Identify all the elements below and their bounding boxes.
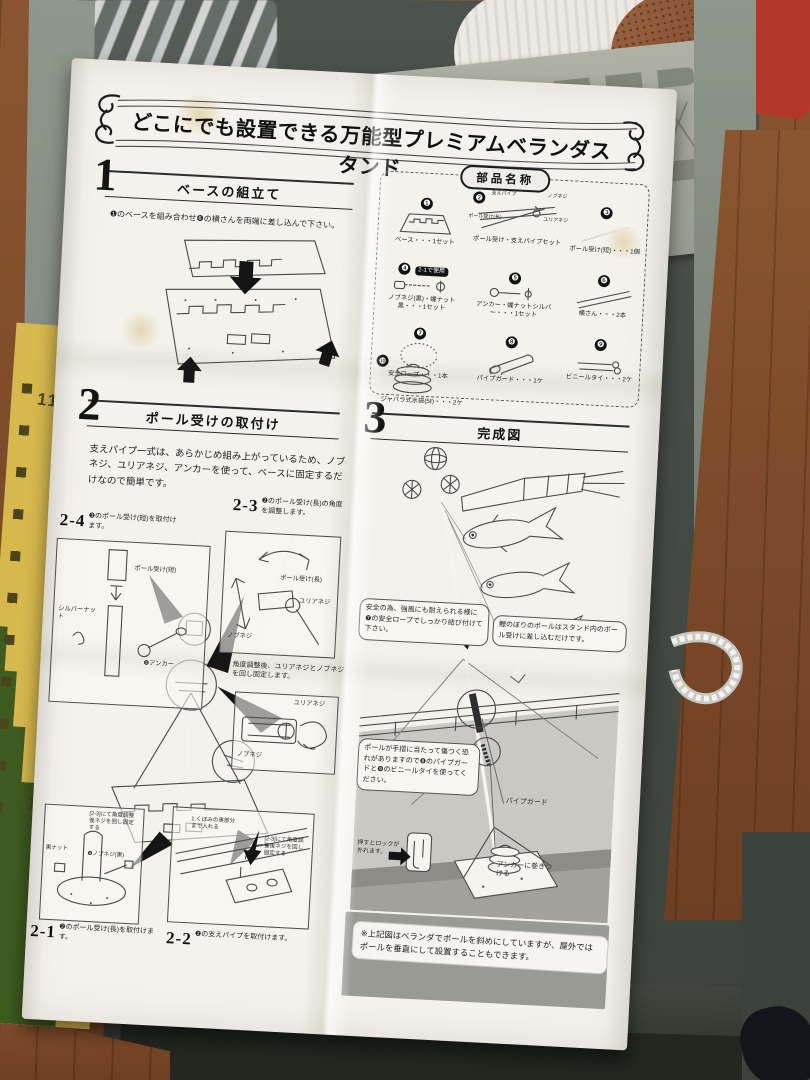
vinyl-tie-icon xyxy=(571,351,628,376)
step2-intro: 支えパイプ一式は、あらかじめ組み上がっているため、ノブネジ、ユリアネジ、アンカー… xyxy=(88,441,348,501)
step2-number: 2 xyxy=(77,384,102,424)
scroll-ornament-icon xyxy=(615,117,652,177)
part-item-1: ❶ ベース・・・1セット xyxy=(383,191,470,248)
step2-1-label: 2-1 ❷のポール受け(長)を取付けます。 xyxy=(30,921,171,948)
part-item-3: ❸ ポール受け(短)・・・1個 xyxy=(566,200,645,257)
part-sublabel: ユリアネジ xyxy=(543,217,568,225)
scroll-ornament-icon xyxy=(89,89,126,149)
step2-4-label: 2-4 ❸のポール受け(短)を取付けます。 xyxy=(59,510,220,538)
knob-screw-icon xyxy=(390,275,455,296)
part-sublabel: 支えパイプ xyxy=(491,190,516,198)
pole-holder-short-icon xyxy=(576,219,635,248)
step2-2-diagram-box: 1.くぼみの奥部分まで入れる [2-3]にて角度調整後ネジを回し固定する xyxy=(167,806,315,929)
crossbar-icon xyxy=(573,287,634,312)
part-item-4: ❹ 2-1で使用 ノブネジ(黒)・蝶ナット黒・・・1セット xyxy=(379,256,466,313)
base-icon xyxy=(396,209,455,238)
attach-support-pipe-diagram xyxy=(168,807,314,928)
title-banner: どこにでも設置できる万能型プレミアムベランダスタンド xyxy=(89,83,652,182)
part-number: ❻ xyxy=(598,274,611,287)
photo-scene: 110 100 どこにでも設 xyxy=(0,0,810,1080)
part-item-5: ❺ アンカー・蝶ナットシルバー・・・1セット xyxy=(469,265,560,320)
step2-4-diagram-box: ポール受け(短) シルバーナット ❺アンカー xyxy=(48,538,210,710)
step3-heading: 完成図 xyxy=(477,422,523,443)
part-number: ❹ xyxy=(399,262,412,275)
step2-header: ポール受けの取付け 2 xyxy=(87,399,340,439)
base-assembly-diagram xyxy=(121,227,353,395)
water-bag-icon xyxy=(389,361,437,397)
step-id: 2-4 xyxy=(59,510,86,531)
part-item-10: ❿ ジャバラ式水袋(5ℓ)・・・2ケ xyxy=(374,360,496,409)
part-number: ❺ xyxy=(509,272,522,285)
step1-number: 1 xyxy=(93,154,118,194)
label-silver-nut: シルバーナット xyxy=(58,605,103,623)
step-id: 2-2 xyxy=(166,928,193,949)
step2-3-diagram-box: ポール受け(長) ユリアネジ ノブネジ xyxy=(219,531,341,659)
part-number: ❾ xyxy=(594,338,607,351)
step2-heading: ポール受けの取付け xyxy=(145,407,281,433)
part-number: ❿ xyxy=(376,354,389,367)
step-text: ❷のポール受け(長)の角度を調整します。 xyxy=(261,497,348,521)
label-insert-depth: 1.くぼみの奥部分まで入れる xyxy=(191,816,236,832)
fix-note-diagram-box: ユリアネジ ノブネジ xyxy=(231,691,339,774)
instruction-sheet: どこにでも設置できる万能型プレミアムベランダスタンド ベースの組立て 1 ❶のベ… xyxy=(22,58,678,1050)
step2-1-diagram-box: 黒ナット [2-3]にて角度調整後ネジを回し固定する ❹ノブネジ(黒) xyxy=(39,804,145,925)
label-angle-note: [2-3]にて角度調整後ネジを回し固定する xyxy=(89,811,140,835)
part-sublabel: ノブネジ xyxy=(547,193,567,200)
part-item-6: ❻ 横さん・・・2本 xyxy=(565,268,641,321)
label-anchor-wrap: アンカーに巻きつける xyxy=(496,861,559,882)
step-id: 2-3 xyxy=(232,495,259,516)
step-id: 2-1 xyxy=(30,921,57,942)
part-number: ❶ xyxy=(421,197,434,210)
anchor-bolt-icon xyxy=(486,284,543,303)
parts-heading-badge: 部品名称 xyxy=(460,165,551,194)
pole-holder-short-diagram xyxy=(49,539,209,709)
part-number: ❼ xyxy=(414,327,427,340)
part-number: ❽ xyxy=(505,336,518,349)
label-black-nut: 黒ナット xyxy=(45,845,75,854)
part-label: ジャバラ式水袋(5ℓ)・・・2ケ xyxy=(380,396,494,410)
step-text: ❷のポール受け(長)を取付けます。 xyxy=(58,923,155,948)
lock-note: 押すとロックが外れます。 xyxy=(357,840,404,857)
part-number: ❸ xyxy=(600,206,613,219)
safety-rope-bubble: 安全の為、強風にも耐えられる様に❼の安全ロープでしっかり結び付けて下さい。 xyxy=(358,598,490,646)
step1-heading: ベースの組立て xyxy=(177,178,282,202)
part-item-9: ❾ ビニールタイ・・・2ケ xyxy=(562,332,638,385)
part-item-2: ❷ 支えパイプ ノブネジ ポール受け(長) ユリアネジ ポール受け・支えパイプセ… xyxy=(471,191,566,248)
part-usage-badge: 2-1で使用 xyxy=(415,266,448,277)
step2-2-label: 2-2 ❷の支えパイプを取付けます。 xyxy=(166,928,327,956)
label-angle-note: [2-3]にて角度調整後ネジを回し固定する xyxy=(263,836,308,859)
completed-figure: 安全の為、強風にも耐えられる様に❼の安全ロープでしっかり結び付けて下さい。 鯉の… xyxy=(350,440,632,923)
step-text: ❷の支えパイプを取付けます。 xyxy=(194,930,307,956)
step3-number: 3 xyxy=(363,397,388,437)
pipe-guard-bubble: ポールが手摺に当たって傷つく恐れがありますので❽のパイプガードと❾のビニールタイ… xyxy=(356,738,481,796)
rope-handle-right xyxy=(662,630,754,730)
